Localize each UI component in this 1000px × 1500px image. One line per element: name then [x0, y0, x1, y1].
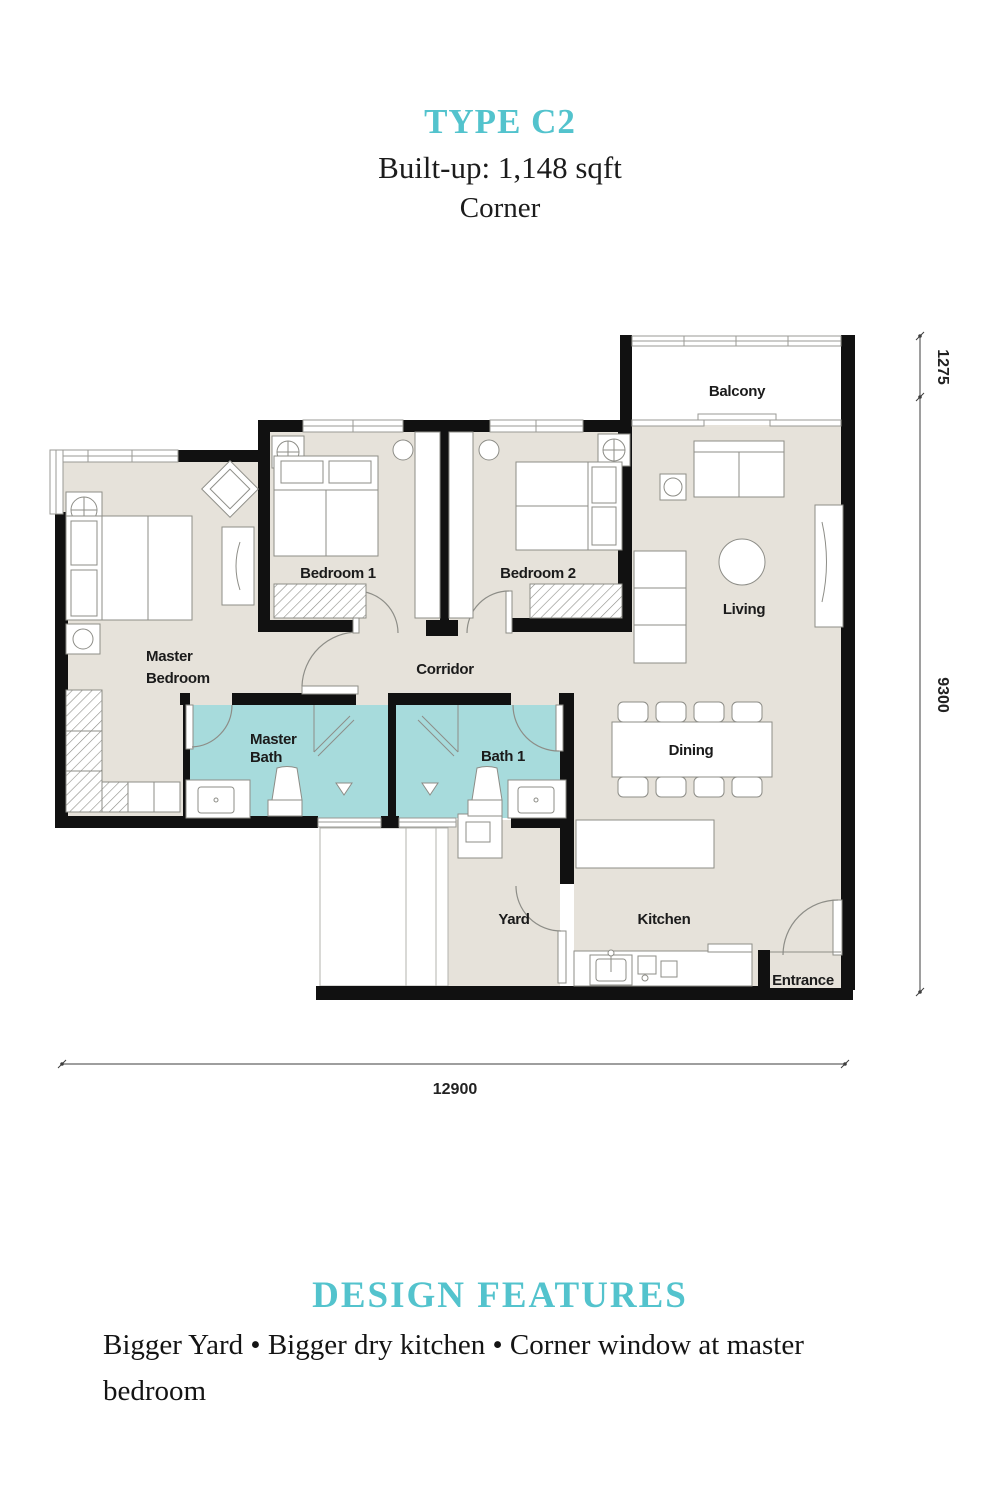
master-cabinet-icon [102, 782, 180, 812]
design-features-heading: DESIGN FEATURES [0, 1274, 1000, 1317]
dining-label: Dining [669, 742, 714, 759]
master-bedroom-label-line2: Bedroom [146, 670, 210, 687]
bedroom2-bed-icon [516, 462, 622, 550]
living-label: Living [723, 601, 766, 618]
width-dimension: 12900 [433, 1081, 478, 1098]
service-void [320, 828, 448, 986]
master-corner-window-left-icon [50, 450, 63, 514]
kitchen-sink-icon [590, 950, 632, 985]
balcony-sliding-door-icon [632, 414, 841, 426]
bedroom2-closet-icon [449, 432, 473, 618]
balcony-height-dimension: 1275 [934, 349, 951, 385]
master-bath-label-line1: Master [250, 731, 297, 748]
bedroom2-ceiling-fan-icon [598, 434, 630, 466]
bedroom2-window-icon [490, 420, 583, 432]
yard-washer-icon [458, 814, 502, 858]
bath1-label: Bath 1 [481, 748, 525, 765]
bedroom2-wardrobe-icon [530, 584, 622, 618]
kitchen-label: Kitchen [638, 911, 691, 928]
master-bedroom-label-line1: Master [146, 648, 193, 665]
master-tv-cabinet-icon [222, 527, 254, 605]
design-features-text: Bigger Yard • Bigger dry kitchen • Corne… [103, 1322, 855, 1414]
bath1-window-icon [399, 818, 456, 827]
balcony-railing-icon [632, 336, 841, 346]
kitchen-island-icon [576, 820, 714, 868]
kitchen-counter-lip-icon [708, 944, 752, 952]
corridor-label: Corridor [416, 661, 474, 678]
bedroom1-bed-icon [274, 456, 378, 556]
living-tv-console-icon [815, 505, 843, 627]
bedroom2-label: Bedroom 2 [500, 565, 576, 582]
living-side-table-icon [660, 474, 686, 500]
bedroom1-lamp-icon [393, 440, 413, 460]
bedroom2-lamp-icon [479, 440, 499, 460]
master-corner-window-top-icon [50, 450, 178, 462]
living-sofa-icon [694, 441, 784, 497]
entrance-label: Entrance [772, 972, 834, 989]
yard-label: Yard [498, 911, 529, 928]
master-bath-window-icon [318, 818, 381, 827]
master-bed-icon [66, 516, 192, 620]
bedroom1-closet-icon [415, 432, 440, 618]
master-bath-vanity-icon [186, 780, 250, 818]
bedroom1-label: Bedroom 1 [300, 565, 376, 582]
master-nightstand-icon [66, 624, 100, 654]
bedroom1-window-icon [303, 420, 403, 432]
master-wardrobe-icon [66, 690, 102, 812]
main-height-dimension: 9300 [934, 677, 951, 713]
master-bath-label-line2: Bath [250, 749, 282, 766]
living-coffee-table-icon [719, 539, 765, 585]
balcony-label: Balcony [709, 383, 766, 400]
living-bench-icon [634, 551, 686, 663]
bedroom1-wardrobe-icon [274, 584, 366, 618]
bath1-vanity-icon [508, 780, 566, 818]
